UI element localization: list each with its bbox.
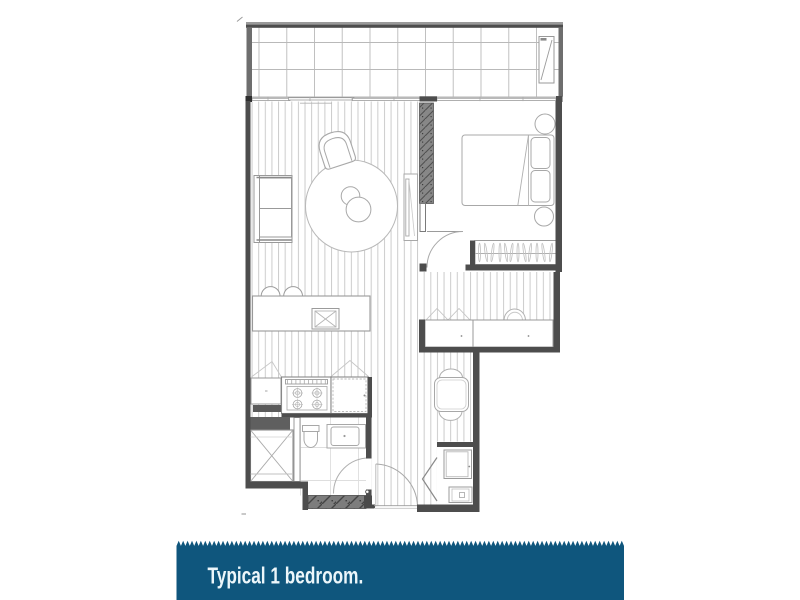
svg-text:Typical 1 bedroom.: Typical 1 bedroom. [208, 564, 364, 589]
